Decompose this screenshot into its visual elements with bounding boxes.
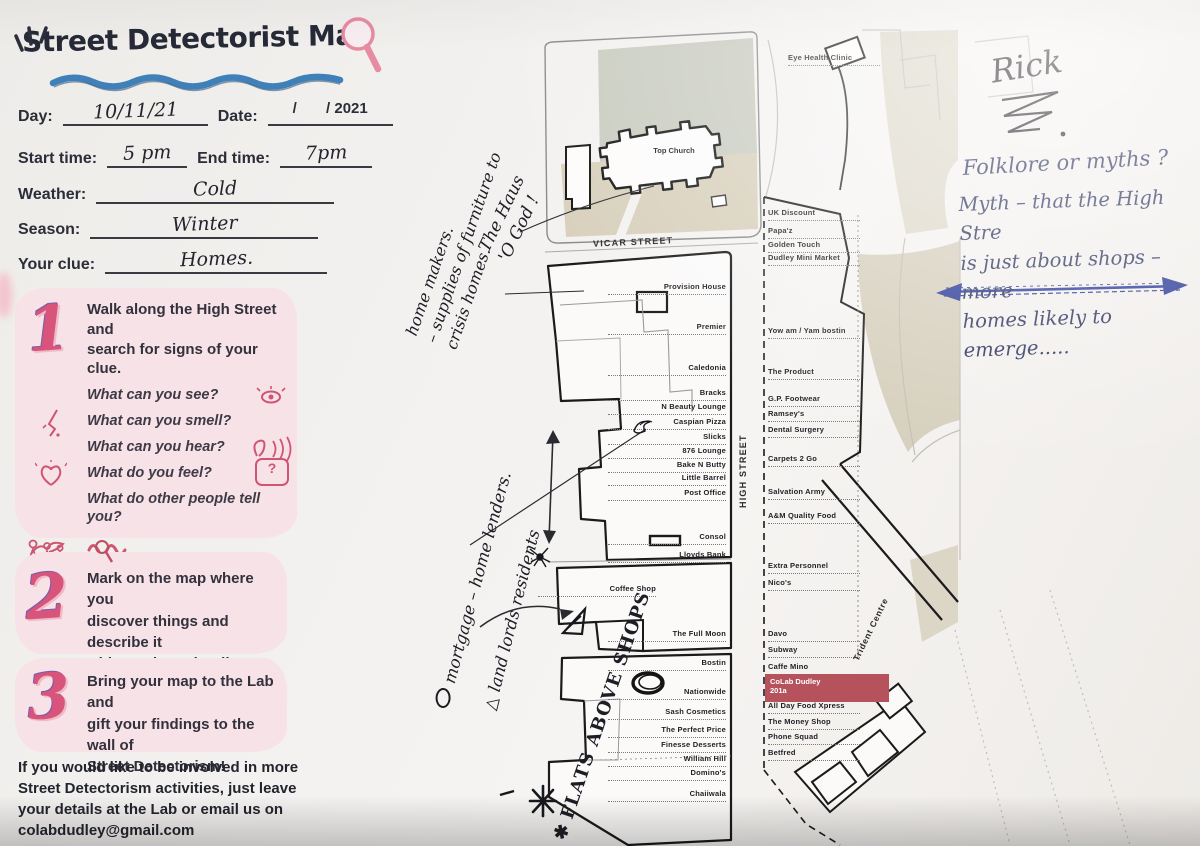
pen-mark <box>500 791 514 795</box>
sparkle-icon <box>14 20 56 60</box>
rick-scribble-dot <box>1061 132 1066 137</box>
rick-scribble <box>1002 92 1058 132</box>
wave-underline <box>48 68 352 98</box>
oval-doodle <box>633 673 663 693</box>
triangle-doodle-line <box>568 616 581 628</box>
double-arrow-line <box>549 434 553 540</box>
curved-arrow-head <box>560 609 574 620</box>
worksheet-page: Provision HousePremierCaledoniaBracksN B… <box>0 0 1200 846</box>
note-connector-1 <box>505 291 584 294</box>
oval-symbol <box>436 688 451 708</box>
double-arrow-top <box>546 430 560 444</box>
blue-arrow-head-left <box>936 283 962 301</box>
oval-doodle-inner <box>639 675 661 689</box>
note-myth: Myth – that the High Stre is just about … <box>958 182 1200 366</box>
